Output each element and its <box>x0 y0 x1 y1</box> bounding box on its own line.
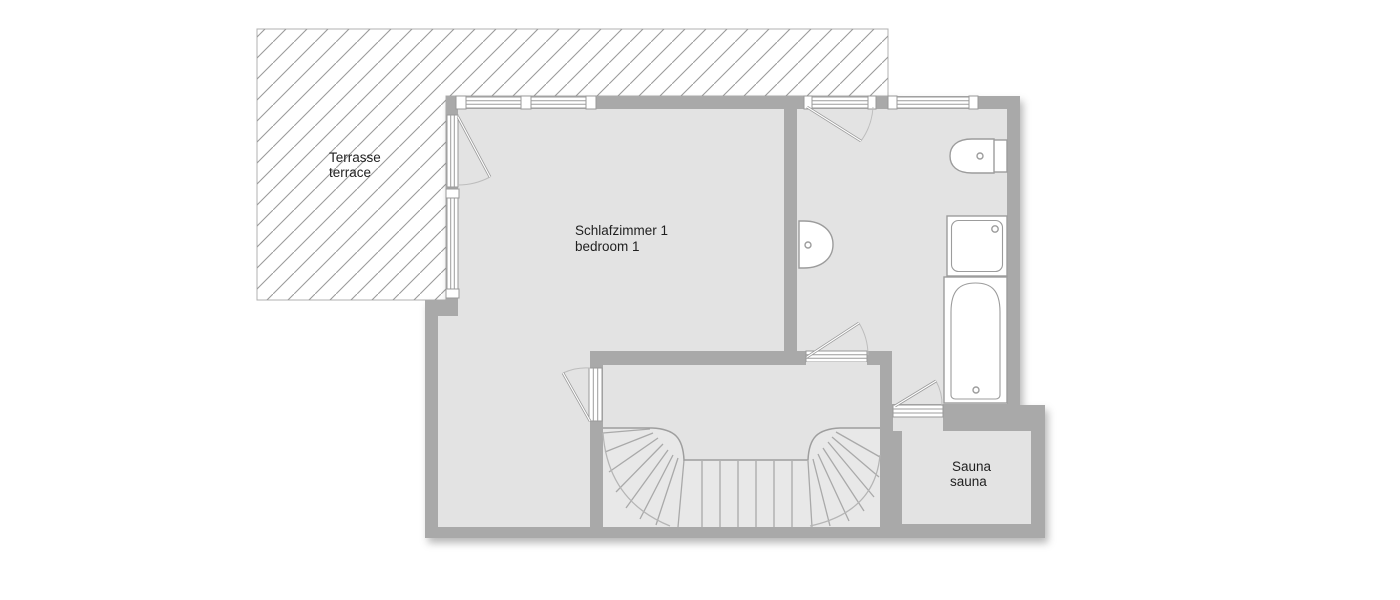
sauna-label-de: Sauna <box>952 459 992 474</box>
bedroom-label-en: bedroom 1 <box>575 239 640 254</box>
shower-drain <box>992 226 998 232</box>
toilet-bowl <box>950 139 994 173</box>
bedroom-label-de: Schlafzimmer 1 <box>575 223 668 238</box>
bathtub-drain <box>973 387 979 393</box>
shower-tray <box>947 216 1007 276</box>
window-bedroom-west <box>446 189 459 298</box>
sink-drain <box>805 242 811 248</box>
sauna-label-en: sauna <box>950 474 987 489</box>
toilet-drain <box>977 153 983 159</box>
terrace-label-en: terrace <box>329 165 371 180</box>
toilet <box>950 139 1007 173</box>
floor-plan-canvas: Terrasse terrace Schlafzimmer 1 bedroom … <box>0 0 1400 600</box>
window-bathroom-north <box>888 96 978 109</box>
floor-plan-page: Terrasse terrace Schlafzimmer 1 bedroom … <box>0 0 1400 600</box>
bathtub <box>944 277 1007 403</box>
shower <box>947 216 1007 276</box>
terrace-label-de: Terrasse <box>329 150 381 165</box>
toilet-tank <box>993 140 1007 172</box>
window-bedroom-north <box>456 96 596 109</box>
